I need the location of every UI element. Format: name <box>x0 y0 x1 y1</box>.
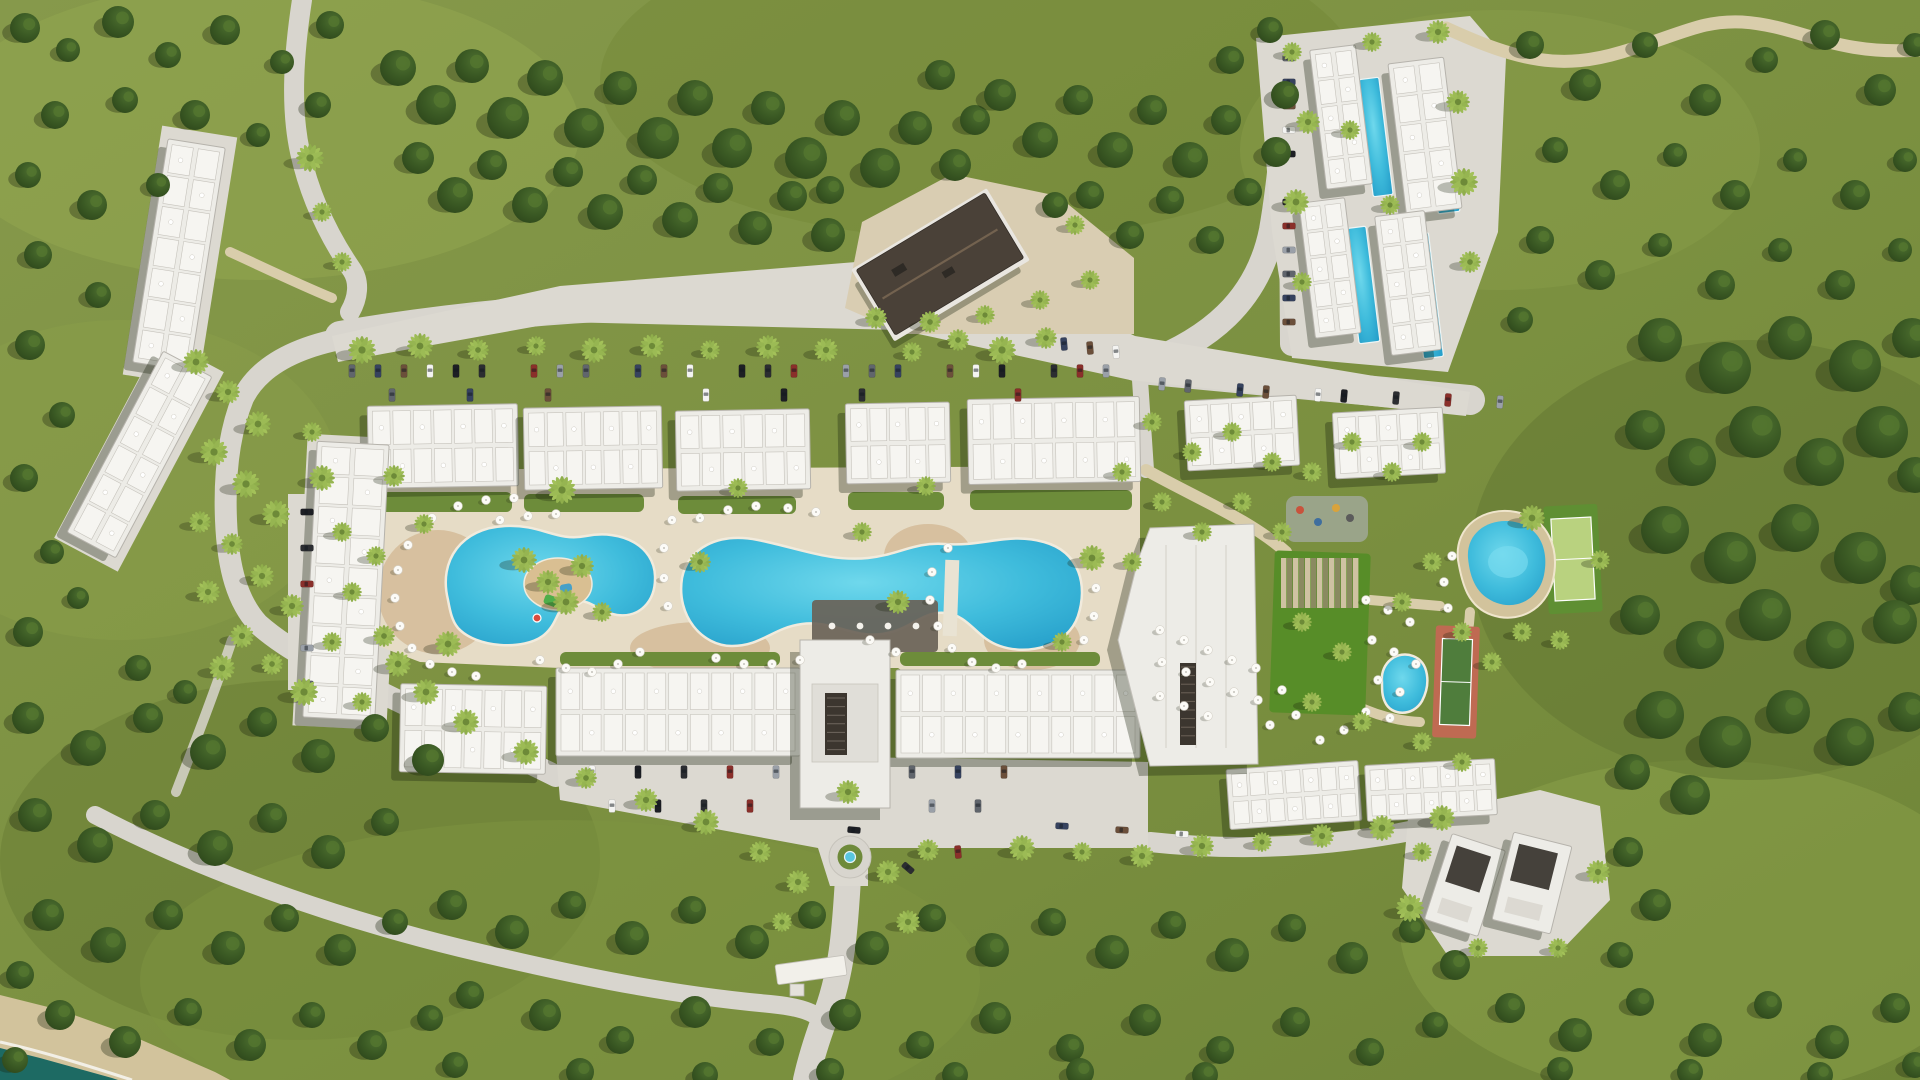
terrace-umbrella <box>676 730 681 735</box>
parasol-pole <box>799 659 801 661</box>
tree-highlight <box>938 65 950 77</box>
terrace-umbrella <box>1413 253 1418 258</box>
parked-car <box>1262 385 1270 399</box>
tree-highlight <box>106 933 120 947</box>
tree-highlight <box>603 200 617 214</box>
amphitheater-seating <box>1299 558 1304 608</box>
tree-highlight <box>51 544 61 554</box>
parked-car <box>791 365 797 378</box>
amphitheater-seating <box>1311 558 1316 608</box>
tree-highlight <box>1697 629 1716 648</box>
car-windshield <box>1119 827 1123 832</box>
tree-highlight <box>18 966 29 977</box>
terrace-umbrella <box>1042 458 1047 463</box>
parasol-pole <box>1255 667 1257 669</box>
palm-tree <box>1590 550 1610 570</box>
tree-highlight <box>26 166 36 176</box>
tree-highlight <box>26 707 39 720</box>
car-windshield <box>1316 392 1321 396</box>
palm-tree <box>1380 195 1400 215</box>
parked-car <box>531 365 537 378</box>
palm-tree <box>366 546 386 566</box>
parked-car <box>681 766 687 779</box>
roof-terrace <box>504 691 521 728</box>
palm-tree <box>916 476 936 496</box>
parasol-pole <box>397 569 399 571</box>
terrace-umbrella <box>333 458 338 463</box>
palm-tree <box>1310 824 1334 848</box>
palm-tree <box>1072 842 1092 862</box>
terrace-umbrella <box>1328 116 1333 121</box>
tree-highlight <box>281 54 291 64</box>
roof-terrace <box>1337 306 1355 331</box>
roof-terrace <box>455 448 473 482</box>
palm-tree <box>553 589 579 615</box>
car-windshield <box>1087 345 1092 349</box>
tree-highlight <box>1787 323 1805 341</box>
palm-tree <box>902 342 922 362</box>
terrace-umbrella <box>783 689 788 694</box>
tree-highlight <box>326 841 340 855</box>
car-windshield <box>930 804 935 807</box>
tree-highlight <box>1583 74 1596 87</box>
tree-highlight <box>510 921 524 935</box>
parasol-pole <box>1183 639 1185 641</box>
tree-highlight <box>373 719 384 730</box>
parked-car <box>557 365 563 378</box>
terrace-umbrella <box>752 466 757 471</box>
terrace-umbrella <box>359 609 364 614</box>
roof-terrace <box>1390 298 1410 324</box>
parked-car <box>747 800 753 813</box>
car-windshield <box>305 510 308 515</box>
tree-highlight <box>703 1066 713 1076</box>
parasol-pole <box>451 671 453 673</box>
tree-highlight <box>450 895 462 907</box>
tree-highlight <box>1626 842 1638 854</box>
parasol-pole <box>947 547 949 549</box>
terrace-umbrella <box>951 691 956 696</box>
playground-equipment <box>1296 506 1304 514</box>
palm-tree <box>1412 732 1432 752</box>
parasol-pole <box>995 667 997 669</box>
parasol-pole <box>1183 705 1185 707</box>
tree-highlight <box>1268 21 1278 31</box>
roof-terrace <box>966 675 985 712</box>
tree-highlight <box>53 106 64 117</box>
parasol-pole <box>1343 729 1345 731</box>
parasol-pole <box>1231 659 1233 661</box>
roof-terrace <box>641 449 657 483</box>
terrace-umbrella <box>1445 774 1450 779</box>
tree-highlight <box>1508 998 1520 1010</box>
parked-car <box>1001 766 1007 779</box>
car-windshield <box>1016 393 1021 396</box>
parked-car <box>975 800 981 813</box>
palm-tree <box>511 547 537 573</box>
parked-car <box>895 365 901 378</box>
parasol-pole <box>1371 639 1373 641</box>
car-windshield <box>1446 397 1451 401</box>
tree-highlight <box>1688 782 1704 798</box>
tree-highlight <box>1879 415 1900 436</box>
tree-highlight <box>123 91 133 101</box>
palm-tree <box>221 533 243 555</box>
tree-highlight <box>1852 349 1873 370</box>
roof-terrace <box>153 237 179 268</box>
tree-highlight <box>1110 941 1124 955</box>
tree-highlight <box>1553 141 1563 151</box>
parasol-pole <box>1377 679 1379 681</box>
palm-tree <box>1296 110 1320 134</box>
palm-tree <box>467 339 489 361</box>
terrace-umbrella <box>772 428 777 433</box>
parasol-pole <box>869 639 871 641</box>
terrace-umbrella <box>1334 239 1339 244</box>
tree-highlight <box>1752 415 1773 436</box>
palm-tree <box>1352 712 1372 732</box>
terrace-umbrella <box>979 419 984 424</box>
palm-tree <box>1382 462 1402 482</box>
terrace-umbrella <box>1311 215 1316 220</box>
terrace-umbrella <box>502 423 507 428</box>
tree-highlight <box>90 195 102 207</box>
amphitheater-seating <box>1305 558 1310 608</box>
roof-terrace <box>1397 95 1421 123</box>
tree-highlight <box>86 736 100 750</box>
roof-terrace <box>1285 770 1301 793</box>
terrace-umbrella <box>730 429 735 434</box>
palm-tree <box>296 144 324 172</box>
tree-highlight <box>528 193 542 207</box>
parked-car <box>1175 830 1188 837</box>
car-windshield <box>948 369 953 372</box>
car-windshield <box>910 770 915 773</box>
parked-car <box>301 645 314 651</box>
parasol-pole <box>1393 651 1395 653</box>
tree-highlight <box>693 86 707 100</box>
terrace-umbrella <box>646 425 651 430</box>
palm-tree <box>1586 860 1610 884</box>
palm-tree <box>1080 270 1100 290</box>
roof-terrace <box>547 413 563 447</box>
palm-tree <box>513 739 539 765</box>
roof-terrace <box>1030 717 1049 754</box>
car-windshield <box>428 369 433 372</box>
terrace-umbrella <box>687 430 692 435</box>
parasol-pole <box>1443 581 1445 583</box>
tree-highlight <box>990 939 1004 953</box>
terrace-lounger <box>913 623 920 630</box>
roof-terrace <box>973 444 991 479</box>
parked-car <box>1051 365 1057 378</box>
parasol-pole <box>671 519 673 521</box>
terrace-umbrella <box>411 705 416 710</box>
tree-highlight <box>1208 231 1219 242</box>
tree-highlight <box>67 42 77 52</box>
tree-highlight <box>1410 921 1420 931</box>
parasol-pole <box>931 571 933 573</box>
car-windshield <box>704 393 709 396</box>
tree-highlight <box>434 92 450 108</box>
roof-terrace <box>583 673 602 710</box>
terrace-umbrella <box>590 730 595 735</box>
terrace-umbrella <box>1345 87 1350 92</box>
terrace-umbrella <box>709 467 714 472</box>
parked-car <box>687 365 693 378</box>
terrace-umbrella <box>611 689 616 694</box>
tree-highlight <box>1228 51 1239 62</box>
palm-tree <box>1292 612 1312 632</box>
roof-terrace <box>414 449 432 483</box>
parasol-pole <box>555 513 557 515</box>
roof-terrace <box>393 411 411 445</box>
tree-highlight <box>1904 152 1914 162</box>
palm-tree <box>1130 844 1154 868</box>
roof-terrace <box>987 717 1006 754</box>
palm-tree <box>1426 20 1450 44</box>
palm-tree <box>526 336 546 356</box>
tree-highlight <box>370 1035 382 1047</box>
playground-equipment <box>1332 504 1340 512</box>
tree-highlight <box>1857 541 1878 562</box>
palm-tree <box>1292 272 1312 292</box>
palm-tree <box>332 252 352 272</box>
terrace-umbrella <box>633 730 638 735</box>
gate-booth <box>790 984 804 996</box>
terrace-umbrella <box>794 465 799 470</box>
parasol-pole <box>527 515 529 517</box>
terrace-umbrella <box>1345 428 1350 433</box>
parasol-pole <box>1095 587 1097 589</box>
terrace-umbrella <box>1481 772 1486 777</box>
parasol-pole <box>1319 739 1321 741</box>
roof-terrace <box>690 715 709 752</box>
parked-car <box>954 845 962 859</box>
parasol-pole <box>513 497 515 499</box>
parked-car <box>301 509 314 515</box>
car-windshield <box>1287 320 1290 325</box>
parasol-pole <box>1365 711 1367 713</box>
roof-terrace <box>1305 796 1321 819</box>
parked-car <box>955 766 961 779</box>
tree-highlight <box>328 16 339 27</box>
tree-highlight <box>338 939 351 952</box>
car-windshield <box>766 369 771 372</box>
car-windshield <box>976 804 981 807</box>
terrace-umbrella <box>609 426 614 431</box>
car-windshield <box>844 369 849 372</box>
tree-highlight <box>878 155 894 171</box>
roof-terrace <box>1318 79 1336 104</box>
palm-tree <box>852 522 872 542</box>
tree-highlight <box>993 1007 1006 1020</box>
roof-terrace <box>444 731 461 768</box>
car-windshield <box>305 582 308 587</box>
tree-highlight <box>1659 237 1669 247</box>
terrace-umbrella <box>1403 77 1408 82</box>
car-windshield <box>1160 381 1165 385</box>
terrace-umbrella <box>930 732 935 737</box>
tree-highlight <box>1830 1031 1844 1045</box>
tree-highlight <box>1827 629 1846 648</box>
tree-highlight <box>1274 142 1286 154</box>
palm-tree <box>352 692 372 712</box>
palm-tree <box>1035 327 1057 349</box>
palm-tree <box>189 511 211 533</box>
terrace-umbrella <box>1080 691 1085 696</box>
tree-highlight <box>1662 514 1681 533</box>
palm-tree <box>1459 251 1481 273</box>
tree-highlight <box>543 66 557 80</box>
parasol-pole <box>539 659 541 661</box>
terrace-umbrella <box>1367 457 1372 462</box>
palm-tree <box>975 305 995 325</box>
tree-highlight <box>570 896 581 907</box>
roof-terrace <box>993 404 1011 439</box>
palm-tree <box>1065 215 1085 235</box>
tree-highlight <box>1899 242 1909 252</box>
terrace-umbrella <box>327 578 332 583</box>
roof-terrace <box>174 272 200 303</box>
apartment-block <box>548 668 800 765</box>
car-windshield <box>636 369 641 372</box>
roof-terrace <box>1233 801 1249 824</box>
palm-tree <box>814 338 838 362</box>
palm-tree <box>407 333 433 359</box>
parked-car <box>1444 393 1452 407</box>
terrace-umbrella <box>1059 732 1064 737</box>
parasol-pole <box>399 625 401 627</box>
terrace-umbrella <box>762 730 767 735</box>
parasol-pole <box>1083 639 1085 641</box>
palm-tree <box>209 655 235 681</box>
parked-car <box>1392 391 1400 405</box>
tree-highlight <box>1688 1063 1698 1073</box>
parked-car <box>1314 388 1322 402</box>
palm-tree <box>1192 522 1212 542</box>
palm-tree <box>1232 492 1252 512</box>
car-windshield <box>1000 369 1005 372</box>
garden-strip <box>900 652 1100 666</box>
parasol-pole <box>1389 717 1391 719</box>
tree-highlight <box>766 97 780 111</box>
car-windshield <box>728 770 733 773</box>
parked-car <box>427 365 433 378</box>
car-windshield <box>896 369 901 372</box>
parasol-pole <box>411 647 413 649</box>
palm-tree <box>1362 32 1382 52</box>
palm-tree <box>876 860 900 884</box>
roof-terrace <box>647 715 666 752</box>
tree-highlight <box>36 246 47 257</box>
palm-tree <box>640 334 664 358</box>
tree-highlight <box>1653 894 1666 907</box>
tree-highlight <box>1733 185 1745 197</box>
roof-terrace <box>1269 798 1285 821</box>
parked-car <box>909 766 915 779</box>
roof-terrace <box>1073 717 1092 754</box>
terrace-umbrella <box>1257 809 1262 814</box>
playground-equipment <box>1314 518 1322 526</box>
tree-highlight <box>918 1036 929 1047</box>
roof-terrace <box>755 673 774 710</box>
parasol-pole <box>1257 699 1259 701</box>
tree-highlight <box>930 909 941 920</box>
roof-terrace <box>1409 269 1429 295</box>
roof-terrace <box>1014 443 1032 478</box>
tree-highlight <box>22 469 33 480</box>
tree-highlight <box>1818 1066 1828 1076</box>
tree-highlight <box>578 1063 589 1074</box>
tree-highlight <box>543 1004 556 1017</box>
roof-terrace <box>622 411 638 445</box>
terrace-umbrella <box>628 464 633 469</box>
parked-car <box>1015 389 1021 402</box>
parasol-pole <box>1207 715 1209 717</box>
tree-highlight <box>1088 186 1099 197</box>
parasol-pole <box>951 647 953 649</box>
car-windshield <box>390 393 395 396</box>
parked-car <box>765 365 771 378</box>
parked-car <box>1158 377 1166 391</box>
palm-tree <box>245 411 271 437</box>
tree-highlight <box>213 836 227 850</box>
apartment-block <box>888 670 1140 767</box>
roof-terrace <box>1340 793 1356 816</box>
palm-tree <box>1282 42 1302 62</box>
palm-tree <box>1446 90 1470 114</box>
tree-highlight <box>1283 86 1294 97</box>
tree-highlight <box>1689 446 1708 465</box>
palm-tree <box>1122 552 1142 572</box>
tree-highlight <box>640 170 652 182</box>
terrace-lounger <box>857 623 864 630</box>
palm-tree <box>1369 815 1395 841</box>
terrace-umbrella <box>591 465 596 470</box>
car-windshield <box>682 770 687 773</box>
terrace-umbrella <box>531 707 536 712</box>
parked-car <box>635 365 641 378</box>
parasol-pole <box>1295 714 1297 716</box>
tree-highlight <box>193 105 205 117</box>
tree-highlight <box>1350 947 1363 960</box>
tree-highlight <box>270 808 282 820</box>
tree-highlight <box>810 906 821 917</box>
tree-highlight <box>1703 89 1716 102</box>
site-plan-canvas <box>0 0 1920 1080</box>
tree-highlight <box>428 1009 438 1019</box>
palm-tree <box>1222 422 1242 442</box>
terrace-umbrella <box>973 732 978 737</box>
roof-terrace <box>1075 402 1093 437</box>
car-windshield <box>1061 341 1066 345</box>
terrace-umbrella <box>895 422 900 427</box>
palm-tree <box>689 551 711 573</box>
tree-highlight <box>730 135 746 151</box>
roof-terrace <box>702 415 721 448</box>
car-windshield <box>1104 369 1109 372</box>
palm-tree <box>947 329 969 351</box>
tree-highlight <box>96 286 106 296</box>
tree-highlight <box>1722 725 1743 746</box>
roof-terrace <box>786 414 805 447</box>
roof-terrace <box>1009 675 1028 712</box>
parked-car <box>947 365 953 378</box>
tree-highlight <box>1128 226 1139 237</box>
parasol-pole <box>663 577 665 579</box>
terrace-umbrella <box>1308 778 1313 783</box>
